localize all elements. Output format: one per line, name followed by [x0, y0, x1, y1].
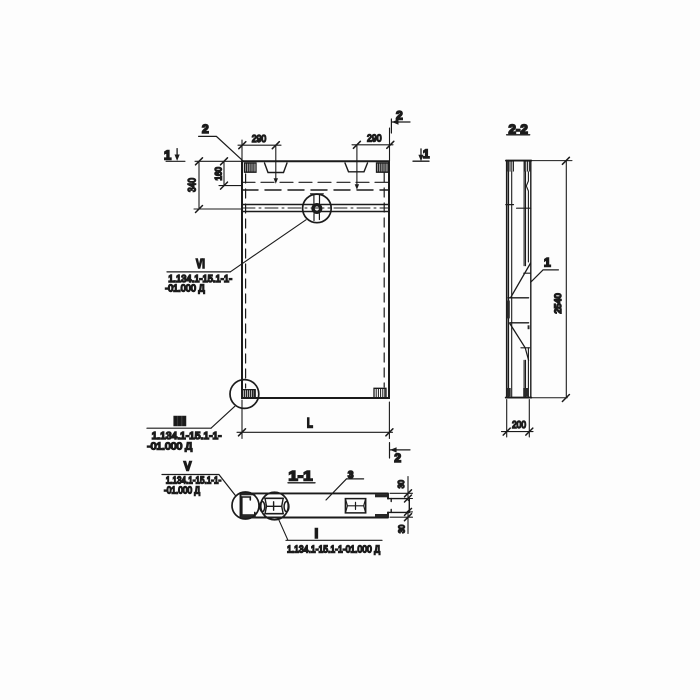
svg-text:2: 2: [396, 109, 403, 123]
svg-text:2: 2: [394, 451, 401, 465]
svg-text:2540: 2540: [553, 293, 563, 313]
svg-text:200: 200: [512, 419, 526, 431]
svg-text:III: III: [173, 415, 186, 429]
svg-text:160: 160: [213, 167, 223, 181]
svg-text:1: 1: [423, 149, 430, 161]
svg-text:1: 1: [164, 147, 171, 162]
svg-text:1.134.1-15.1-1-01.000 Д: 1.134.1-15.1-1-01.000 Д: [287, 545, 380, 556]
svg-text:-01.000 Д: -01.000 Д: [164, 486, 200, 497]
svg-text:1: 1: [544, 256, 551, 270]
svg-text:L: L: [307, 415, 313, 431]
svg-text:V: V: [184, 460, 192, 474]
svg-text:1-1: 1-1: [289, 468, 314, 483]
svg-text:340: 340: [187, 178, 199, 192]
svg-text:30: 30: [397, 525, 407, 534]
svg-text:290: 290: [252, 133, 267, 145]
svg-text:290: 290: [367, 133, 382, 145]
svg-text:VI: VI: [196, 257, 205, 271]
svg-text:-01.000 Д: -01.000 Д: [165, 283, 205, 294]
svg-text:2: 2: [202, 122, 209, 136]
svg-text:-01.000 Д: -01.000 Д: [147, 441, 192, 452]
svg-text:I: I: [315, 526, 319, 541]
svg-text:30: 30: [396, 480, 406, 489]
